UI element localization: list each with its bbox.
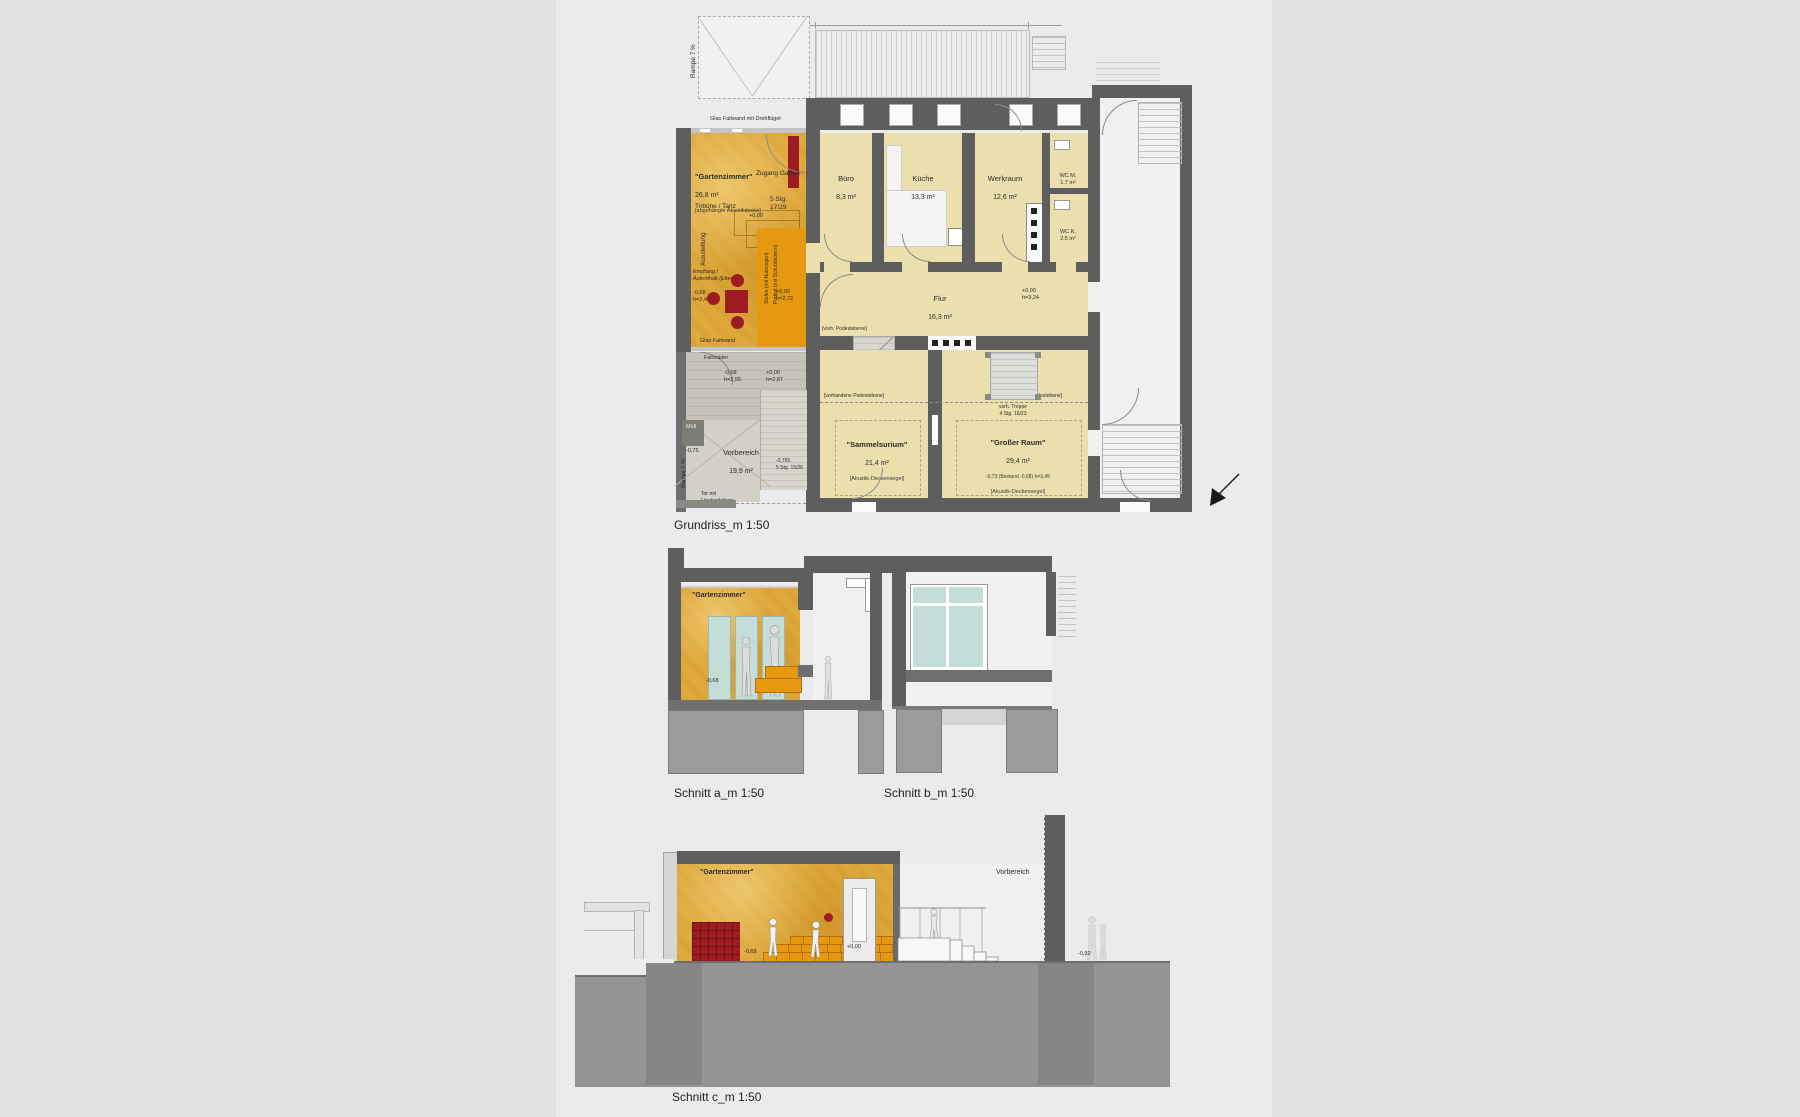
window [937,104,961,126]
b-window-mullion [946,587,949,667]
level-label: -0,75 [686,448,699,455]
b-foundation-pier [1006,709,1058,773]
stool [707,292,720,305]
room-label-wc-m: WC M. 1,7 m² [1048,166,1088,187]
window [889,104,913,126]
c-stair-railing [896,900,1000,963]
c-side-building-line [584,930,634,931]
stair-post [1035,352,1041,358]
room-area: 12,6 m² [975,193,1035,202]
b-foundation-pier [896,709,942,773]
c-foundation-pier [646,963,702,1085]
tribune-label: Tribüne / Tanz [695,203,736,211]
room-area: 16,3 m² [910,313,970,322]
door-opening [1056,262,1076,272]
b-shelf-lines [1058,576,1076,642]
exhibition-label: Ausstellung [700,232,708,266]
a-floor [668,700,882,710]
level-label: +0,00 [749,213,763,220]
terrace-decking [815,30,1030,98]
room-name: WC M. [1060,173,1077,179]
room-label-flur: Flur 16,3 m² [910,286,970,330]
b-right-stub [1046,572,1056,636]
wall-buero-kueche [872,133,884,262]
glass-wall-label: Glas Faltwand [700,338,735,345]
outdoor-stair-top [1032,36,1066,70]
room-name: Küche [884,174,962,184]
room-name: "Sammelsurium" [835,440,919,450]
drawing-sheet: Rampe 7 % Glas Faltwand mit Drehflügel "… [0,0,1800,1117]
c-level-door: +0,00 [847,944,861,951]
chimney-dot [965,340,971,346]
a-roof-existing [804,556,895,573]
c-ball [824,913,833,922]
a-left-wall [668,582,681,702]
wall-opening [1088,430,1100,456]
room-area: 26,8 m² [695,191,761,200]
c-right-column [1044,815,1065,963]
wall-kueche-werkraum [962,133,975,262]
wall-niche [932,415,938,445]
room-label-buero: Büro 8,3 m² [820,166,872,210]
stair-post [985,394,991,400]
door-opening [1120,502,1150,512]
a-glass-panel [708,616,731,700]
a-foundation [668,710,804,774]
annex-left-wall [676,128,691,352]
room-area: 1,7 m² [1060,180,1076,186]
child-figure [807,920,823,959]
table [725,290,748,313]
a-bench-step [755,678,802,693]
room-area: 2,5 m² [1060,236,1076,242]
podest-level-label: [vorhandene Podestebene] [824,393,884,400]
room-name: Flur [910,294,970,304]
c-level-ground: -0,92 [1078,951,1091,958]
b-left-wall [892,556,906,706]
a-room-label: "Gartenzimmer" [692,591,746,600]
canopy-outline [698,16,810,99]
a-level-label: -0,68 [706,678,719,685]
dimension-tick [815,22,816,29]
level-label: -0,68 h=2,55 [724,370,741,384]
wc-fixture [1054,200,1070,210]
trash-label: Müll [686,424,696,431]
c-level-floor: -0,68 [744,949,757,956]
steps-count-label: 5 Stg. 17/29 [770,196,787,213]
room-label-werkraum: Werkraum 12,6 m² [975,166,1035,210]
vestibule-bottom-wall [676,500,736,508]
c-door-panel [852,888,867,942]
a-roof-annex [668,568,804,582]
chimney-dot [932,340,938,346]
north-arrow [1208,472,1242,508]
child-figure [766,918,780,958]
b-window-transom [913,603,983,606]
room-area: 8,3 m² [820,193,872,202]
wall-flur-top [820,262,1088,272]
door-opening [902,262,928,272]
chimney-dot [954,340,960,346]
b-roof [892,556,1052,572]
room-area: 21,4 m² [835,459,919,468]
glass-pane [700,129,710,132]
ramp-label-top: Rampe 7 % [690,44,698,78]
steps-usage-label: Stufen (mit Nutzungen) [764,253,771,304]
vestibule-steps-label: -0,765 5 Stg. 15/26 [776,458,803,471]
closet-dot [1031,244,1037,250]
section-b-caption: Schnitt b_m 1:50 [884,786,974,800]
door-opening [824,262,850,272]
existing-stair [990,352,1038,400]
bikes-label: Fahrräder [704,355,728,362]
level-label: +0,00 h=2,87 [766,370,783,384]
gate-line [736,503,806,504]
glass-pane [732,129,742,132]
room-area: 19,9 m² [706,467,776,476]
window [1057,104,1081,126]
person-figure-small [822,655,834,700]
garden-access-label: Zugang Garten [756,170,800,178]
a-foundation-pier [858,710,884,774]
b-strip-footing [940,709,1006,725]
stair-post [1035,394,1041,400]
section-c-caption: Schnitt c_m 1:50 [672,1090,761,1104]
room-label-wc-k: WC K. 2,5 m² [1048,222,1088,243]
level-note: -0,73 (Bestand -0,68) h=3,45 [956,474,1080,481]
room-name: Vorbereich [706,448,776,458]
room-name: WC K. [1060,229,1076,235]
room-label-vorbereich: Vorbereich 19,9 m² [706,440,776,484]
stair-post [985,352,991,358]
stair-upper [1138,102,1182,164]
ramp-label: Rampe 7 % [681,459,688,488]
room-name: "Großer Raum" [956,438,1080,448]
closet-dot [1031,220,1037,226]
podest-drawers-label: Podest (mit Schubfächern) [773,245,780,304]
c-roof-beam [677,851,900,864]
window [840,104,864,126]
wall-opening [806,243,820,273]
glass-facade-bottom [691,347,806,351]
podest-dashed-line [820,402,1088,403]
c-foundation-pier [1038,963,1094,1085]
b-sill-band [906,670,1052,682]
plan-caption: Grundriss_m 1:50 [674,518,769,532]
glass-facade-label: Glas Faltwand mit Drehflügel [710,116,781,123]
level-label: +0,00 h=3,24 [1022,288,1039,302]
podest-level-label: [vorh. Podestebene] [822,326,867,333]
person-figure [738,636,754,698]
door-opening [1002,262,1028,272]
c-climbing-wall [692,922,740,961]
room-area: 29,4 m² [956,457,1080,466]
chimney-dot [943,340,949,346]
a-sill [798,665,813,677]
closet-dot [1031,232,1037,238]
dimension-tick [1028,22,1029,29]
a-right-wall [870,573,882,706]
room-area: 13,3 m² [884,193,962,202]
existing-stair-label: vorh. Treppe 4 Stg. 16/23 [988,404,1038,417]
door-opening [852,502,876,512]
wc-fixture [1054,140,1070,150]
stool [731,274,744,287]
room-name: Büro [820,174,872,184]
c-vorbereich-label: Vorbereich [996,868,1029,877]
room-label-kueche: Küche 13,3 m² [884,166,962,210]
a-door-head [798,573,813,610]
room-name: "Gartenzimmer" [695,172,761,182]
room-note: [Akustik-Deckensegel] [956,489,1080,496]
room-name: Werkraum [975,174,1035,184]
wall-opening [1088,282,1100,312]
room-label-grosser-raum: "Großer Raum" 29,4 m² -0,73 (Bestand -0,… [956,430,1080,505]
c-side-building-wall [634,910,644,965]
stool [731,316,744,329]
c-room-label: "Gartenzimmer" [700,868,754,877]
wall-left [806,130,820,512]
wing-top-wall [1092,85,1192,98]
section-a-caption: Schnitt a_m 1:50 [674,786,764,800]
